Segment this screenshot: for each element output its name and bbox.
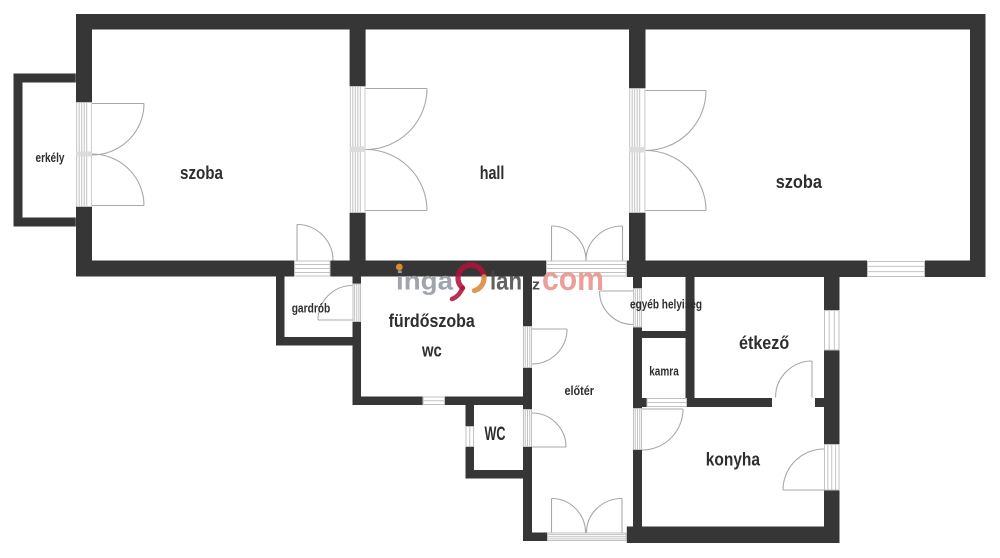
svg-text:com: com xyxy=(542,260,604,297)
svg-text:fürdőszoba: fürdőszoba xyxy=(389,311,476,331)
svg-text:lan: lan xyxy=(490,266,522,296)
svg-text:szoba: szoba xyxy=(180,163,224,183)
svg-text:kamra: kamra xyxy=(649,364,679,379)
svg-text:szoba: szoba xyxy=(776,172,823,192)
svg-text:előtér: előtér xyxy=(565,383,595,398)
svg-text:erkély: erkély xyxy=(36,150,66,165)
svg-text:hall: hall xyxy=(480,163,505,183)
svg-text:egyéb helyiség: egyéb helyiség xyxy=(630,297,702,312)
svg-text:étkező: étkező xyxy=(739,333,789,353)
svg-text:konyha: konyha xyxy=(706,450,761,470)
svg-text:gardrób: gardrób xyxy=(292,301,331,316)
svg-text:wc: wc xyxy=(421,341,442,361)
svg-text:inga: inga xyxy=(396,266,454,296)
svg-text:z: z xyxy=(532,277,540,294)
svg-text:WC: WC xyxy=(485,424,506,445)
